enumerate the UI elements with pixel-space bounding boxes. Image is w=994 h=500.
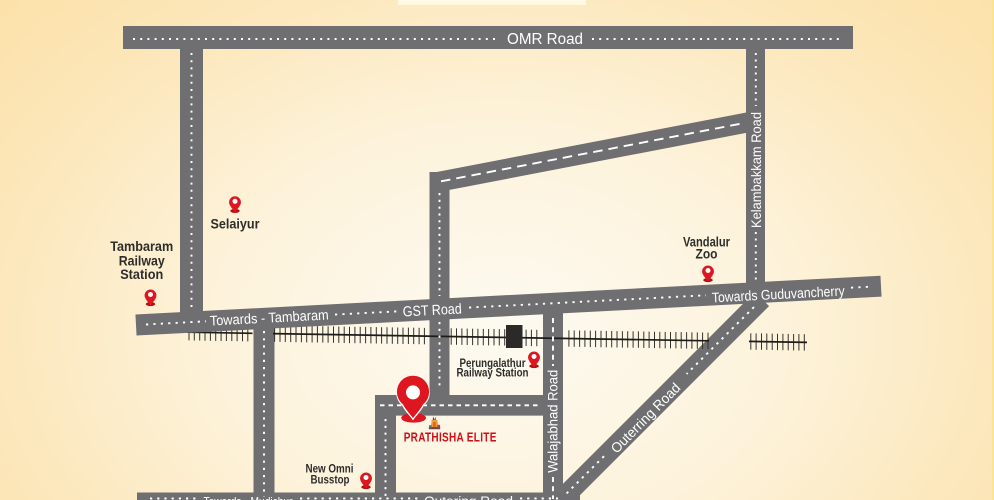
svg-text:OMR Road: OMR Road — [507, 31, 583, 48]
svg-text:Outering Road: Outering Road — [424, 495, 513, 500]
svg-text:Selaiyur: Selaiyur — [211, 216, 260, 232]
svg-text:Busstop: Busstop — [311, 473, 350, 487]
svg-text:PRATHISHA ELITE: PRATHISHA ELITE — [404, 431, 497, 445]
svg-text:Railway Station: Railway Station — [457, 368, 529, 380]
svg-text:Zoo: Zoo — [696, 247, 718, 262]
svg-text:Outerring Road: Outerring Road — [607, 380, 683, 457]
svg-text:Kelambakkam Road: Kelambakkam Road — [749, 112, 764, 228]
svg-text:Station: Station — [120, 266, 163, 282]
svg-text:Towards - Mudichur: Towards - Mudichur — [204, 495, 293, 500]
svg-text:Walajabhad Road: Walajabhad Road — [545, 370, 560, 473]
svg-text:GST Road: GST Road — [402, 301, 462, 320]
